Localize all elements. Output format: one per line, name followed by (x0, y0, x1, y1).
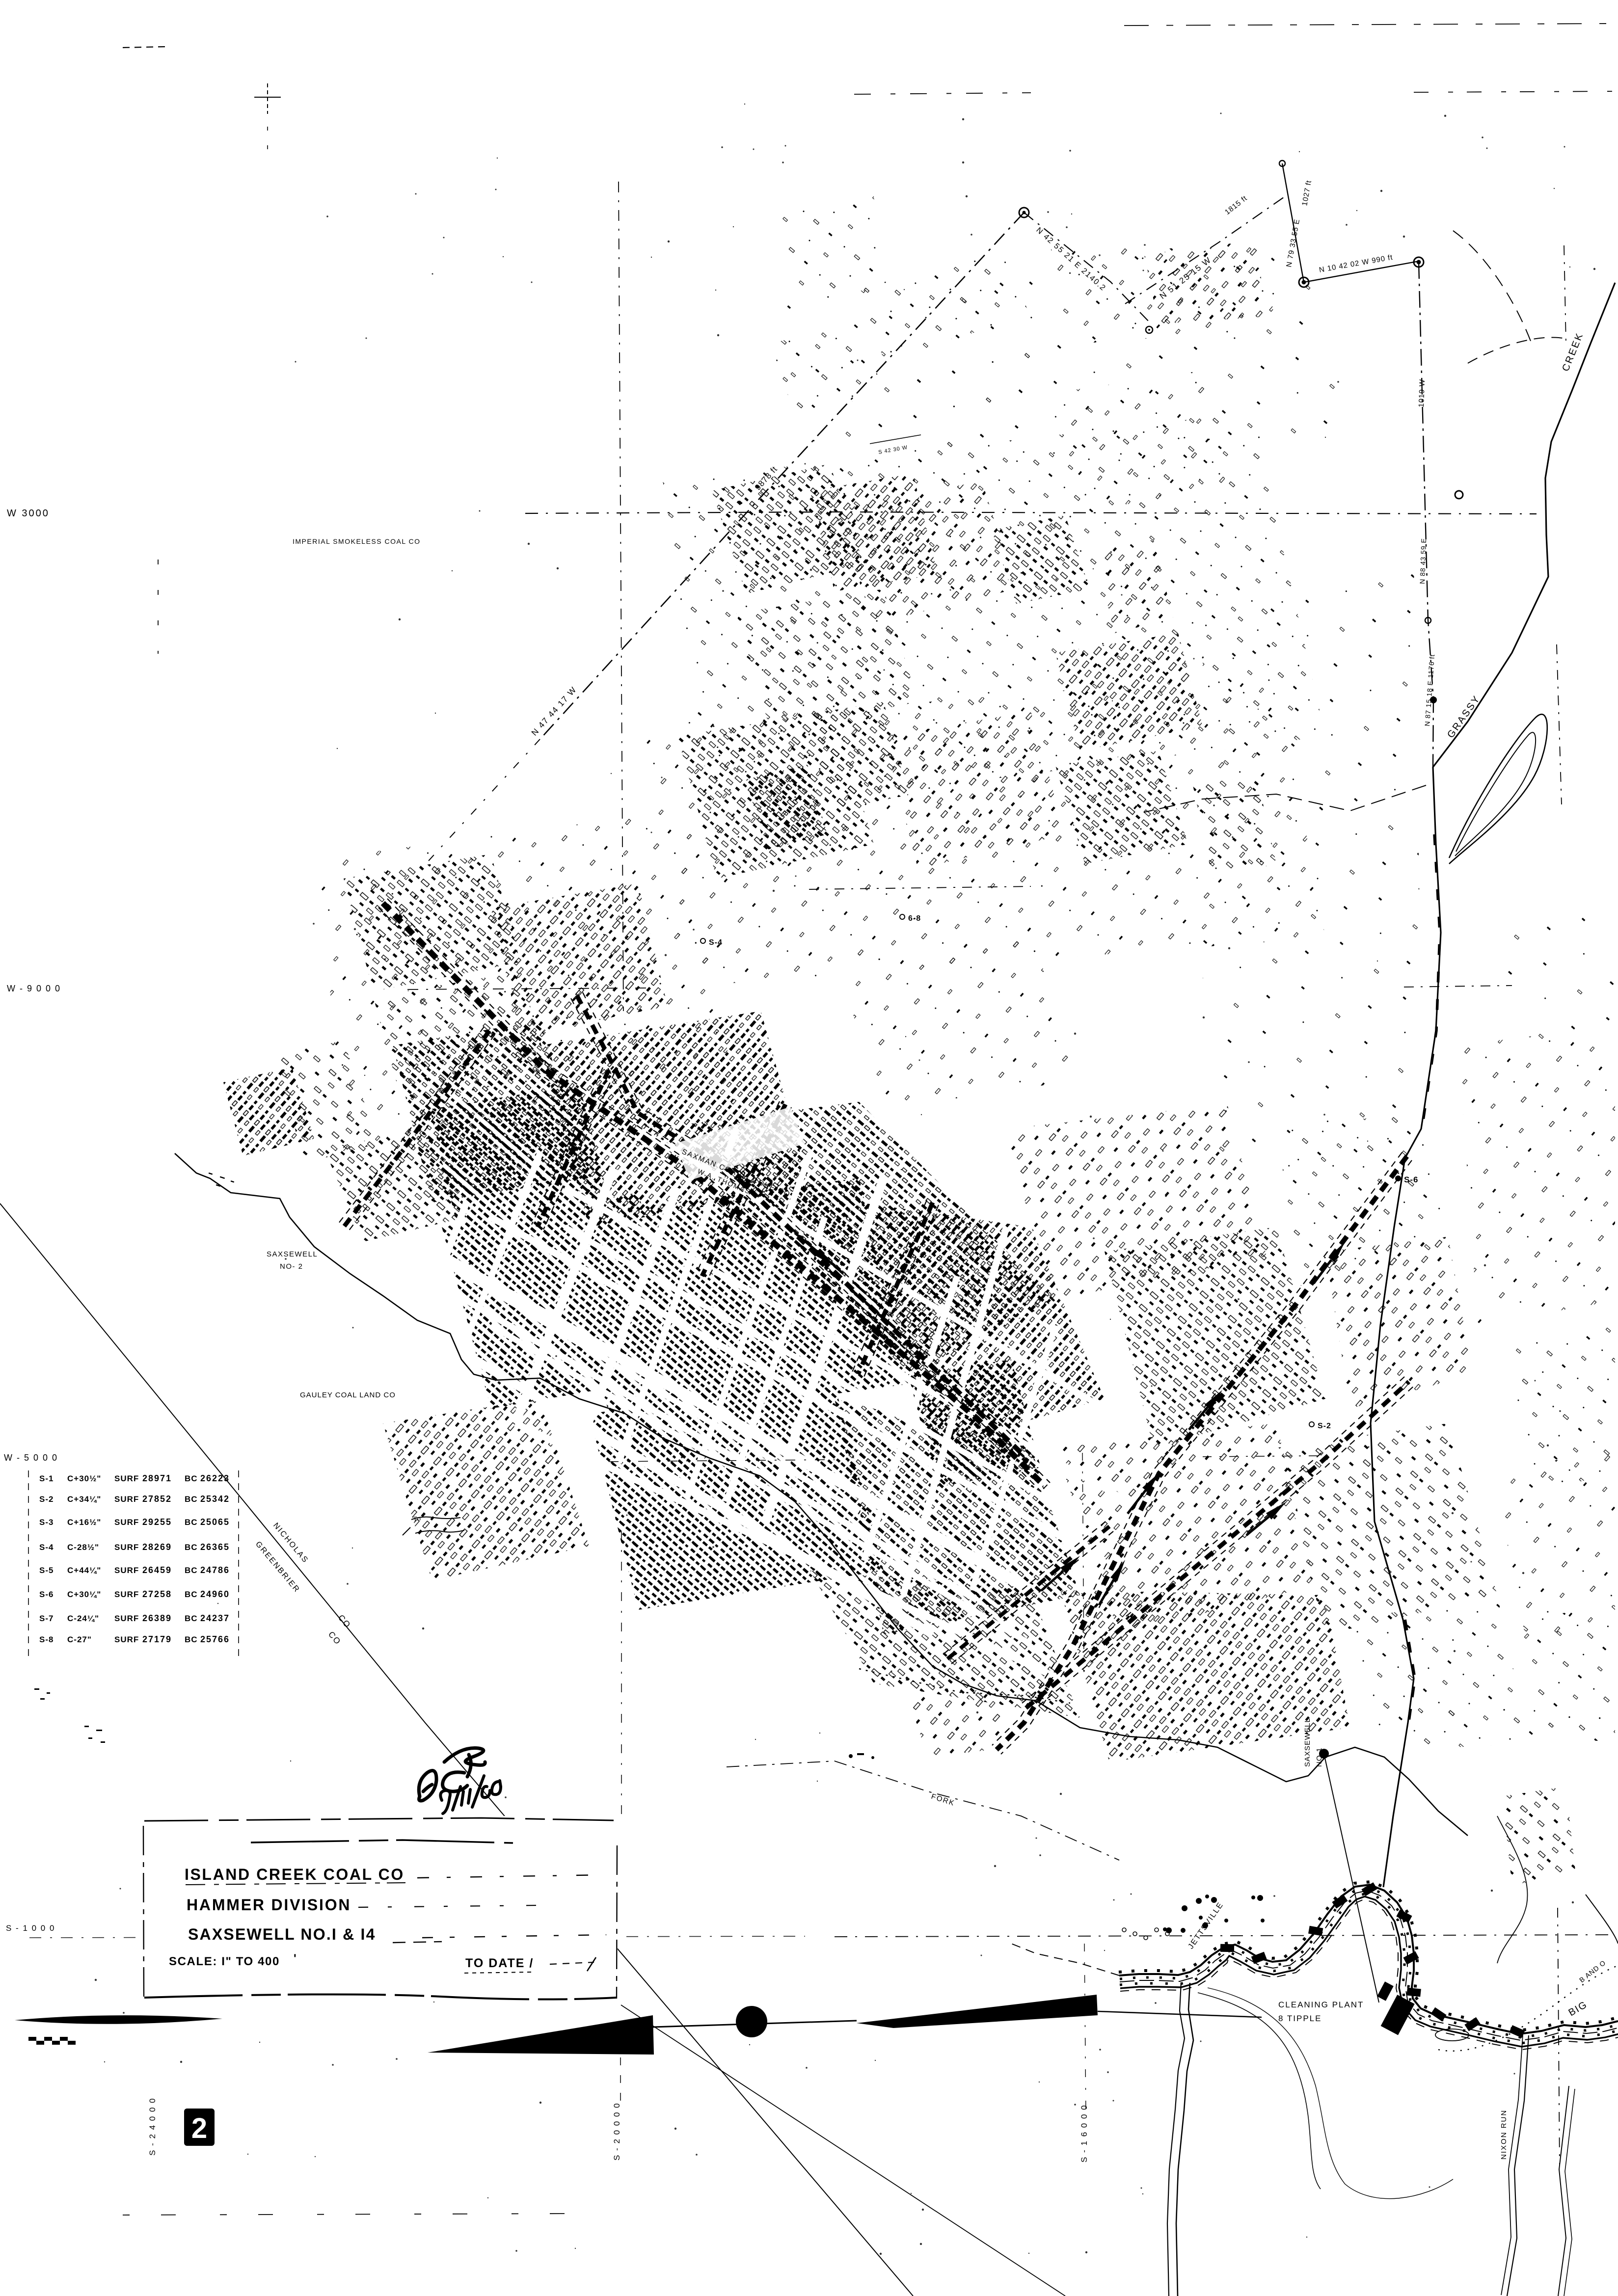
svg-text:N 88 43 59 E: N 88 43 59 E (1418, 538, 1428, 584)
svg-text:C-27": C-27" (67, 1635, 92, 1644)
svg-text:C-24¼": C-24¼" (67, 1614, 99, 1623)
svg-text:6-8: 6-8 (908, 914, 921, 923)
svg-text:S - 1 0 0 0: S - 1 0 0 0 (6, 1923, 55, 1933)
svg-text:26389: 26389 (142, 1613, 172, 1623)
svg-text:C+16½": C+16½" (67, 1518, 101, 1527)
svg-text:TO DATE /: TO DATE / (465, 1956, 534, 1970)
svg-text:S-7: S-7 (39, 1614, 54, 1623)
svg-text:24786: 24786 (200, 1565, 230, 1575)
svg-text:ISLAND CREEK COAL CO: ISLAND CREEK COAL CO (185, 1866, 404, 1883)
svg-text:25766: 25766 (200, 1634, 230, 1644)
svg-text:28269: 28269 (142, 1542, 172, 1552)
svg-text:BC: BC (185, 1495, 198, 1504)
svg-text:S-2: S-2 (39, 1495, 54, 1504)
svg-text:29255: 29255 (142, 1517, 172, 1527)
svg-text:SURF: SURF (114, 1543, 139, 1552)
svg-text:25065: 25065 (200, 1517, 230, 1527)
svg-text:CLEANING PLANT: CLEANING PLANT (1278, 2000, 1364, 2009)
svg-text:SURF: SURF (114, 1495, 139, 1504)
svg-text:1019 W: 1019 W (1417, 379, 1427, 407)
svg-text:HAMMER DIVISION: HAMMER DIVISION (187, 1896, 351, 1914)
svg-text:BC: BC (185, 1518, 198, 1527)
svg-text:S-4: S-4 (39, 1543, 54, 1552)
svg-text:To: To (412, 1515, 422, 1523)
svg-text:S-6: S-6 (39, 1590, 54, 1599)
svg-text:S-8: S-8 (39, 1635, 54, 1644)
svg-text:2: 2 (191, 2112, 207, 2144)
svg-text:CO: CO (336, 1613, 353, 1630)
svg-text:IMPERIAL SMOKELESS COAL CO: IMPERIAL SMOKELESS COAL CO (293, 537, 420, 545)
svg-text:BC: BC (185, 1614, 198, 1623)
svg-text:S-1: S-1 (39, 1474, 54, 1483)
svg-text:NO- 2: NO- 2 (280, 1262, 303, 1271)
svg-text:SURF: SURF (114, 1590, 139, 1599)
svg-text:NO-1: NO-1 (1315, 1747, 1323, 1767)
svg-text:26459: 26459 (142, 1565, 172, 1575)
svg-text:SAXSEWELL: SAXSEWELL (267, 1250, 318, 1258)
svg-text:BC: BC (185, 1566, 198, 1575)
svg-text:SAXSEWELL: SAXSEWELL (1303, 1718, 1312, 1767)
svg-text:SURF: SURF (114, 1635, 139, 1644)
svg-text:S-4: S-4 (709, 938, 723, 947)
svg-text:GRASSY: GRASSY (1445, 693, 1483, 740)
svg-text:27258: 27258 (142, 1589, 172, 1599)
svg-text:S - 1 6 0 0 0: S - 1 6 0 0 0 (1079, 2104, 1089, 2163)
svg-text:C+30¼": C+30¼" (67, 1590, 101, 1599)
svg-text:GAULEY COAL LAND CO: GAULEY COAL LAND CO (300, 1391, 396, 1399)
svg-text:BC: BC (185, 1474, 198, 1483)
svg-text:SCALE: I" TO 400: SCALE: I" TO 400 (169, 1955, 280, 1968)
svg-text:8 TIPPLE: 8 TIPPLE (1278, 2014, 1321, 2023)
svg-text:BIG: BIG (1567, 1999, 1590, 2018)
svg-text:W 3000: W 3000 (7, 508, 50, 519)
svg-text:NIXON RUN: NIXON RUN (1500, 2109, 1508, 2160)
svg-text:1027 ft: 1027 ft (1300, 180, 1313, 207)
svg-text:FORK: FORK (930, 1792, 956, 1808)
svg-text:S-3: S-3 (39, 1518, 54, 1527)
svg-text:28971: 28971 (142, 1473, 172, 1483)
svg-text:W - 5 0 0 0: W - 5 0 0 0 (4, 1453, 58, 1463)
svg-text:BC: BC (185, 1543, 198, 1552)
svg-text:27179: 27179 (142, 1634, 172, 1644)
svg-text:CO: CO (326, 1629, 343, 1647)
svg-text:C-28½": C-28½" (67, 1543, 99, 1552)
svg-text:27852: 27852 (142, 1494, 172, 1504)
svg-text:C+30½": C+30½" (67, 1474, 101, 1483)
svg-text:C+34¼": C+34¼" (67, 1495, 101, 1504)
svg-text:N 10 42 02 W 990 ft: N 10 42 02 W 990 ft (1319, 253, 1394, 274)
svg-text:1815 ft: 1815 ft (1223, 194, 1249, 216)
svg-text:C+44¼": C+44¼" (67, 1566, 101, 1575)
svg-text:BC: BC (185, 1635, 198, 1644)
svg-text:25342: 25342 (200, 1494, 230, 1504)
svg-text:SURF: SURF (114, 1566, 139, 1575)
svg-text:B AND O: B AND O (1578, 1958, 1607, 1984)
svg-text:SURF: SURF (114, 1518, 139, 1527)
svg-text:S-2: S-2 (1318, 1422, 1331, 1430)
svg-text:BC: BC (185, 1590, 198, 1599)
svg-text:24237: 24237 (200, 1613, 230, 1623)
svg-text:': ' (294, 1952, 297, 1965)
svg-text:S - 2 4 0 0 0: S - 2 4 0 0 0 (148, 2097, 157, 2156)
svg-text:S-6: S-6 (1404, 1175, 1418, 1184)
svg-text:N 47 44 17 W: N 47 44 17 W (530, 685, 579, 738)
svg-text:N 87 15 18 E 1176 ft: N 87 15 18 E 1176 ft (1423, 654, 1436, 726)
svg-text:SURF: SURF (114, 1614, 139, 1623)
svg-text:SURF: SURF (114, 1474, 139, 1483)
svg-text:26365: 26365 (200, 1542, 230, 1552)
svg-text:S - 2 0 0 0 0: S - 2 0 0 0 0 (612, 2102, 621, 2161)
svg-text:26223: 26223 (200, 1473, 230, 1483)
svg-text:S-5: S-5 (39, 1566, 54, 1575)
svg-text:24960: 24960 (200, 1589, 230, 1599)
svg-text:W - 9 0 0 0: W - 9 0 0 0 (7, 984, 61, 993)
svg-text:SAXSEWELL NO.I & I4: SAXSEWELL NO.I & I4 (188, 1925, 376, 1943)
